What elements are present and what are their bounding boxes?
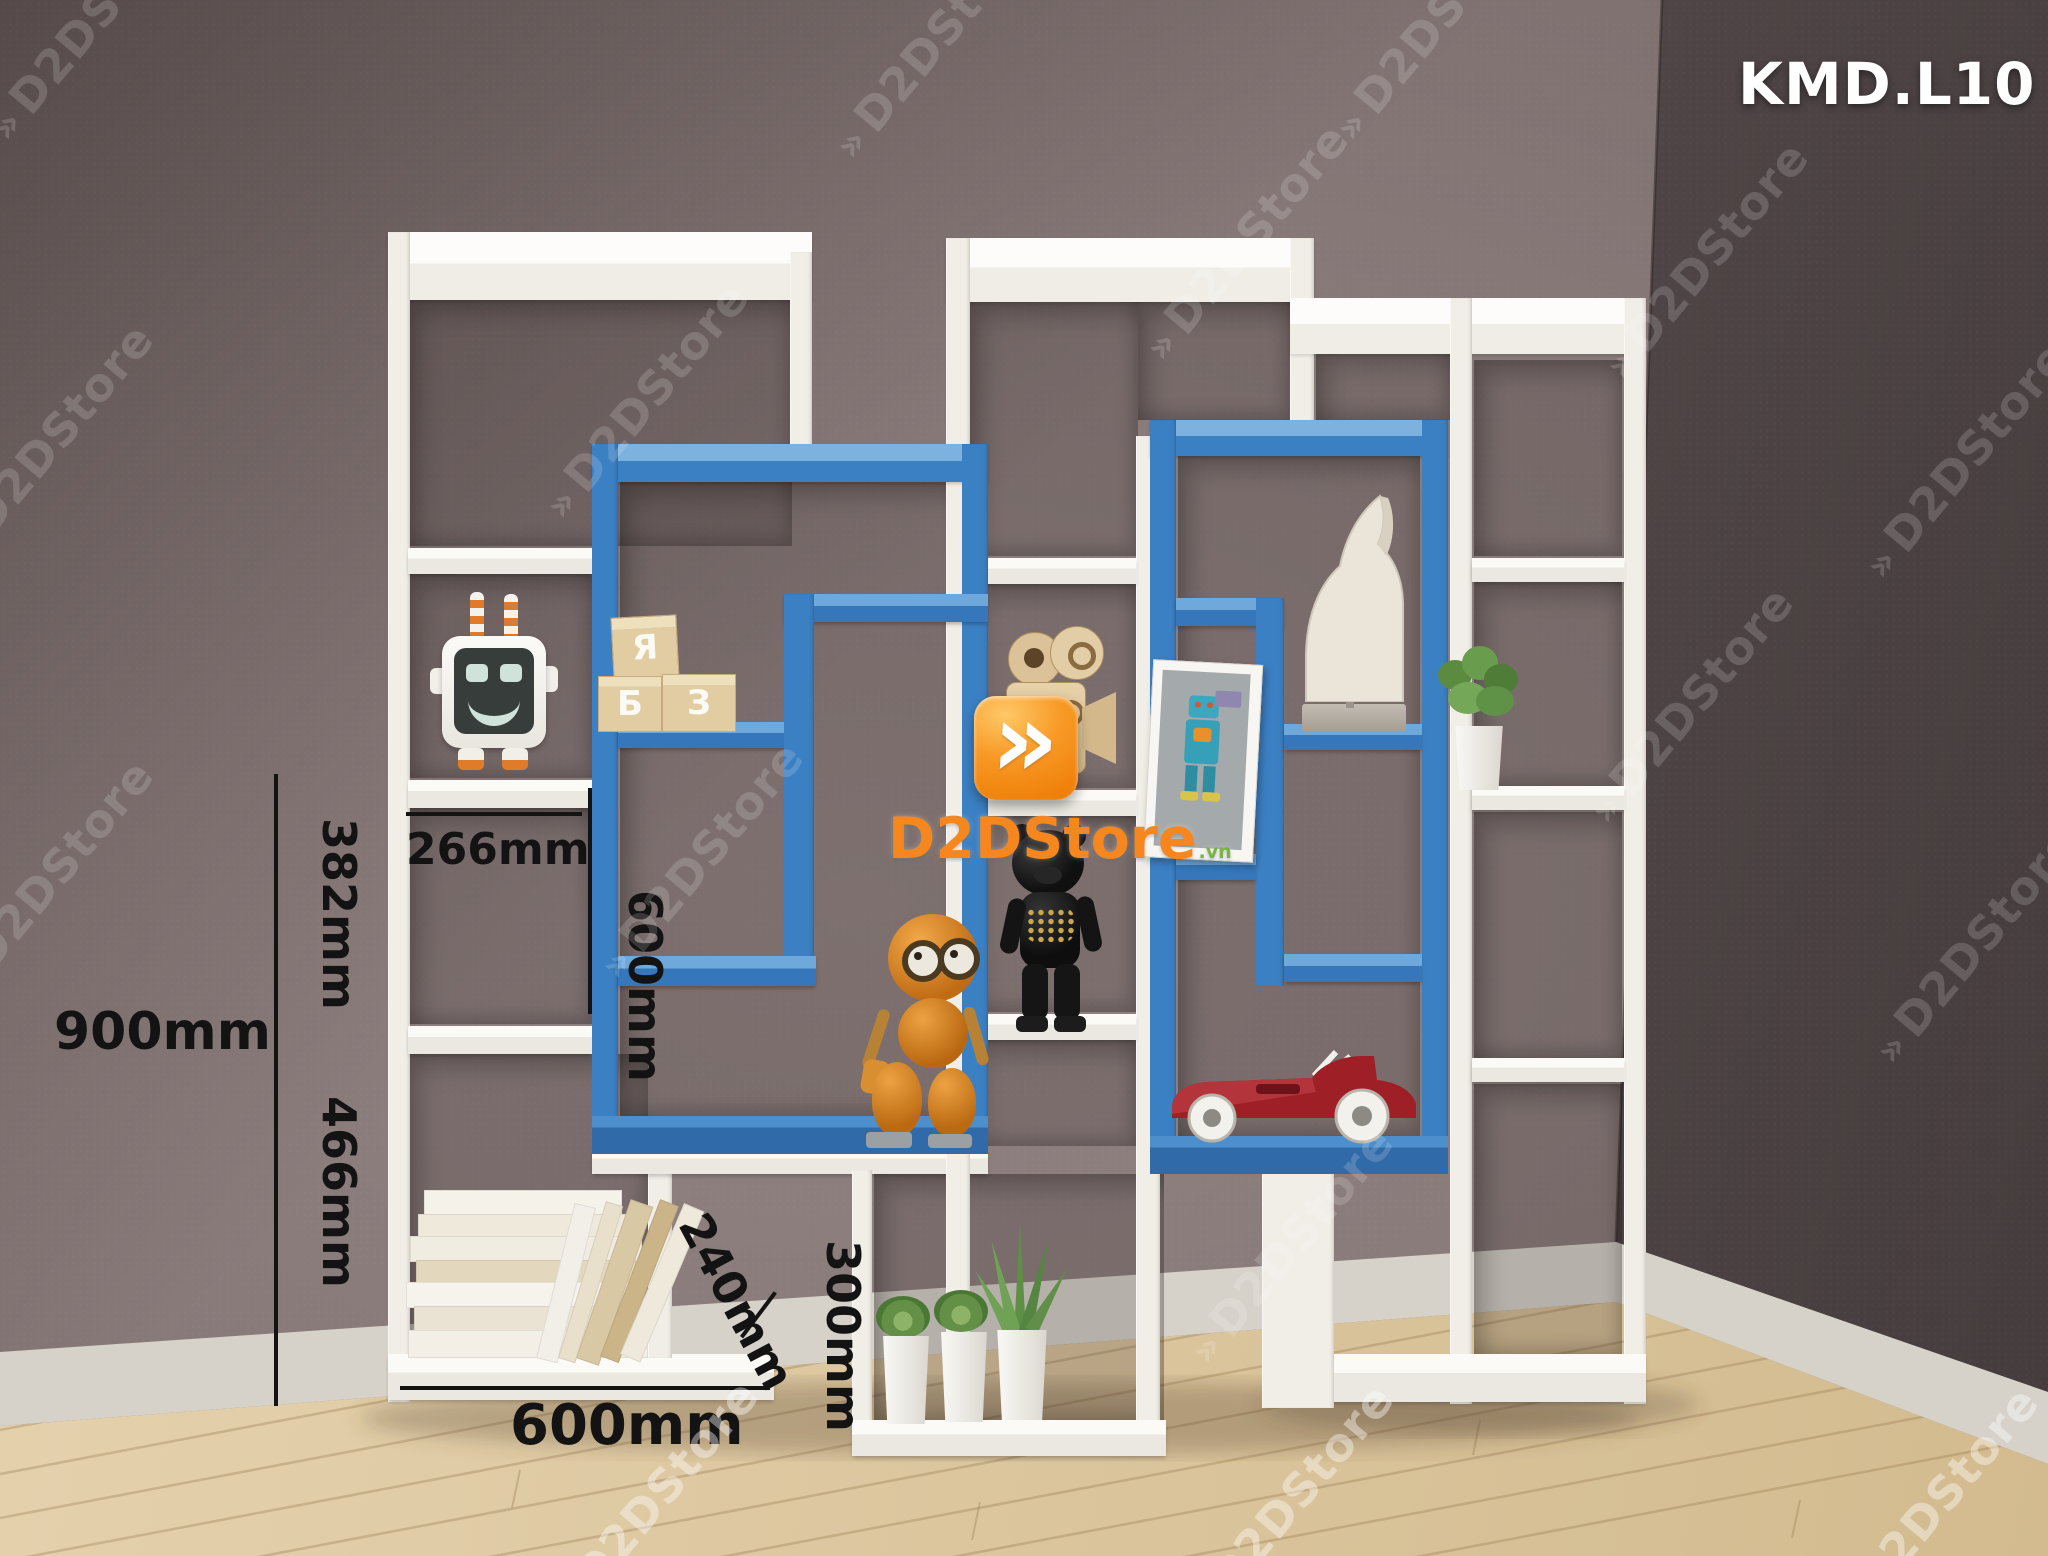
brand-logo-double-chevron-icon: » — [974, 696, 1078, 800]
shelf-board — [1472, 558, 1624, 582]
dimension-label-cell-width: 266mm — [406, 828, 584, 872]
shelf-vertical — [790, 252, 812, 464]
dimension-line-cell-width-end — [588, 788, 592, 1014]
shelf-board — [1472, 1058, 1624, 1082]
alphabet-blocks: Я Б З — [596, 614, 748, 732]
cavity — [1474, 360, 1622, 556]
toy-block: Б — [598, 676, 662, 732]
shelf-board — [970, 558, 1136, 584]
shelf-board — [408, 780, 592, 808]
dimension-label-total-height: 900mm — [54, 1006, 271, 1058]
dimension-label-bottom-cell-height: 300mm — [820, 1240, 866, 1432]
shelf-vertical — [1450, 298, 1472, 1404]
shelf-top-band-left — [388, 232, 812, 300]
cavity — [970, 302, 1138, 556]
aloe-plant — [986, 1222, 1056, 1342]
blue-shelf — [784, 594, 988, 622]
plant-pot — [938, 1332, 990, 1422]
leaning-books — [530, 1184, 676, 1362]
shelf-vertical — [1624, 298, 1646, 1404]
cavity — [1474, 812, 1622, 1058]
brand-domain-suffix: .vn — [1199, 841, 1232, 863]
dimension-label-lower-section: 466mm — [316, 1096, 362, 1288]
orange-robot-figure — [852, 914, 994, 1152]
horse-head-sculpture — [1284, 490, 1424, 744]
blue-frame-top — [592, 444, 988, 482]
potted-plant — [1432, 642, 1524, 794]
plant-pot — [1452, 726, 1506, 790]
toy-block: З — [662, 674, 736, 732]
plant-pot — [994, 1330, 1050, 1420]
product-photo-scene: Я Б З — [0, 0, 2048, 1556]
cavity — [970, 1040, 1136, 1146]
blue-frame-top — [1150, 420, 1448, 456]
blue-frame-side — [592, 444, 618, 1154]
cavity — [1474, 1084, 1622, 1354]
red-toy-car — [1164, 1048, 1426, 1144]
product-code: KMD.L10 — [1738, 50, 2036, 118]
cavity — [1316, 350, 1450, 420]
brand-logo-text: D2DStore.vn — [888, 806, 1232, 872]
dimension-line-total-height — [274, 774, 278, 1406]
dimension-line-cell-width — [406, 812, 582, 816]
blue-shelf — [1284, 954, 1422, 982]
shelf-board — [408, 548, 592, 574]
toy-block: Я — [610, 614, 679, 681]
robot-toy — [428, 592, 560, 784]
blue-frame-side — [1256, 598, 1284, 986]
plant-pot — [880, 1336, 932, 1424]
shelf-board — [408, 1026, 592, 1054]
dimension-label-upper-section: 382mm — [316, 818, 362, 1010]
succulent-plants — [874, 1222, 1084, 1434]
